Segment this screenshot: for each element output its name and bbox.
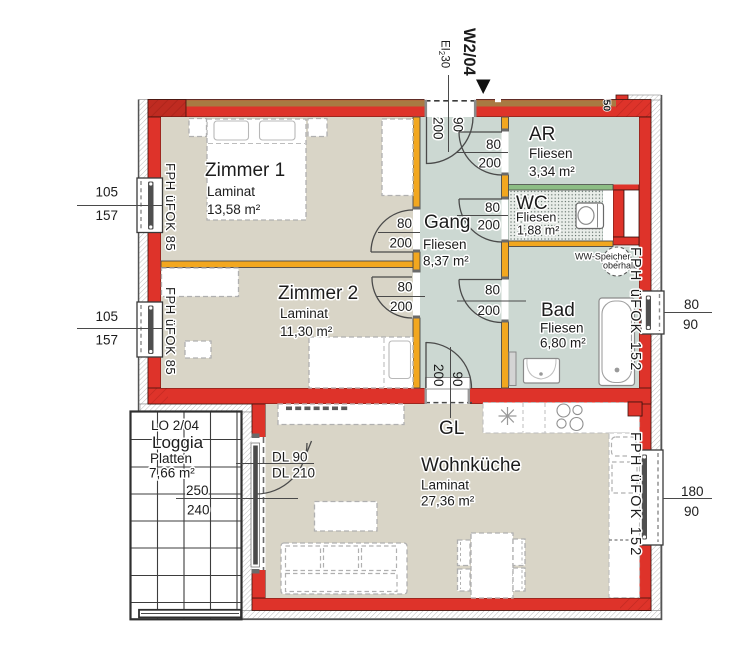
svg-text:105: 105 <box>95 309 118 324</box>
svg-text:7,66 m²: 7,66 m² <box>149 466 195 481</box>
svg-text:80: 80 <box>397 216 412 231</box>
svg-text:105: 105 <box>95 185 118 200</box>
svg-text:1,88 m²: 1,88 m² <box>517 224 559 238</box>
svg-text:DL 90: DL 90 <box>272 450 308 465</box>
svg-text:Fliesen: Fliesen <box>423 237 467 252</box>
svg-text:FPH üFOK 85: FPH üFOK 85 <box>163 163 178 251</box>
svg-text:Zimmer 2: Zimmer 2 <box>278 283 358 304</box>
svg-text:13,58 m²: 13,58 m² <box>207 202 261 217</box>
svg-text:Laminat: Laminat <box>207 184 255 199</box>
svg-text:80: 80 <box>486 137 501 152</box>
svg-text:80: 80 <box>684 297 699 312</box>
svg-text:200: 200 <box>390 299 413 314</box>
svg-text:200: 200 <box>431 117 446 140</box>
svg-text:157: 157 <box>95 333 118 348</box>
svg-text:FPH üFOK 85: FPH üFOK 85 <box>163 287 178 375</box>
svg-text:200: 200 <box>389 236 412 251</box>
svg-text:Platten: Platten <box>150 451 192 466</box>
svg-text:Wohnküche: Wohnküche <box>421 455 521 476</box>
svg-text:FPH üFOK 152: FPH üFOK 152 <box>627 432 643 558</box>
svg-text:Loggia: Loggia <box>152 433 204 452</box>
svg-text:80: 80 <box>485 283 500 298</box>
svg-text:250: 250 <box>186 483 209 498</box>
svg-text:8,37 m²: 8,37 m² <box>423 254 469 269</box>
svg-text:Fliesen: Fliesen <box>529 146 573 161</box>
svg-text:90: 90 <box>683 317 698 332</box>
svg-text:90: 90 <box>684 504 699 519</box>
svg-text:Fliesen: Fliesen <box>540 321 584 336</box>
svg-text:27,36 m²: 27,36 m² <box>421 494 475 509</box>
svg-text:180: 180 <box>681 484 704 499</box>
svg-text:90: 90 <box>451 117 466 132</box>
svg-text:W2/04: W2/04 <box>460 28 478 77</box>
svg-text:GL: GL <box>439 418 464 439</box>
svg-text:3,34 m²: 3,34 m² <box>529 164 575 179</box>
svg-text:Gang: Gang <box>424 212 470 233</box>
svg-text:FPH üFOK 152: FPH üFOK 152 <box>627 247 643 373</box>
svg-text:AR: AR <box>529 124 555 145</box>
svg-text:240: 240 <box>187 503 210 518</box>
svg-text:DL 210: DL 210 <box>272 466 315 481</box>
svg-text:11,30 m²: 11,30 m² <box>280 324 333 339</box>
svg-text:200: 200 <box>477 218 500 233</box>
svg-text:Laminat: Laminat <box>421 478 469 493</box>
svg-text:Laminat: Laminat <box>280 306 328 321</box>
svg-text:80: 80 <box>397 280 412 295</box>
svg-text:Zimmer 1: Zimmer 1 <box>205 160 285 181</box>
svg-text:200: 200 <box>431 364 446 387</box>
svg-text:90: 90 <box>450 372 465 387</box>
svg-text:50: 50 <box>601 100 613 112</box>
svg-text:200: 200 <box>478 156 501 171</box>
svg-text:157: 157 <box>95 208 118 223</box>
svg-text:6,80 m²: 6,80 m² <box>540 336 586 351</box>
svg-text:LO 2/04: LO 2/04 <box>151 418 200 433</box>
svg-text:200: 200 <box>477 303 500 318</box>
svg-text:80: 80 <box>485 200 500 215</box>
svg-text:Fliesen: Fliesen <box>516 211 556 225</box>
svg-text:Bad: Bad <box>541 300 575 321</box>
